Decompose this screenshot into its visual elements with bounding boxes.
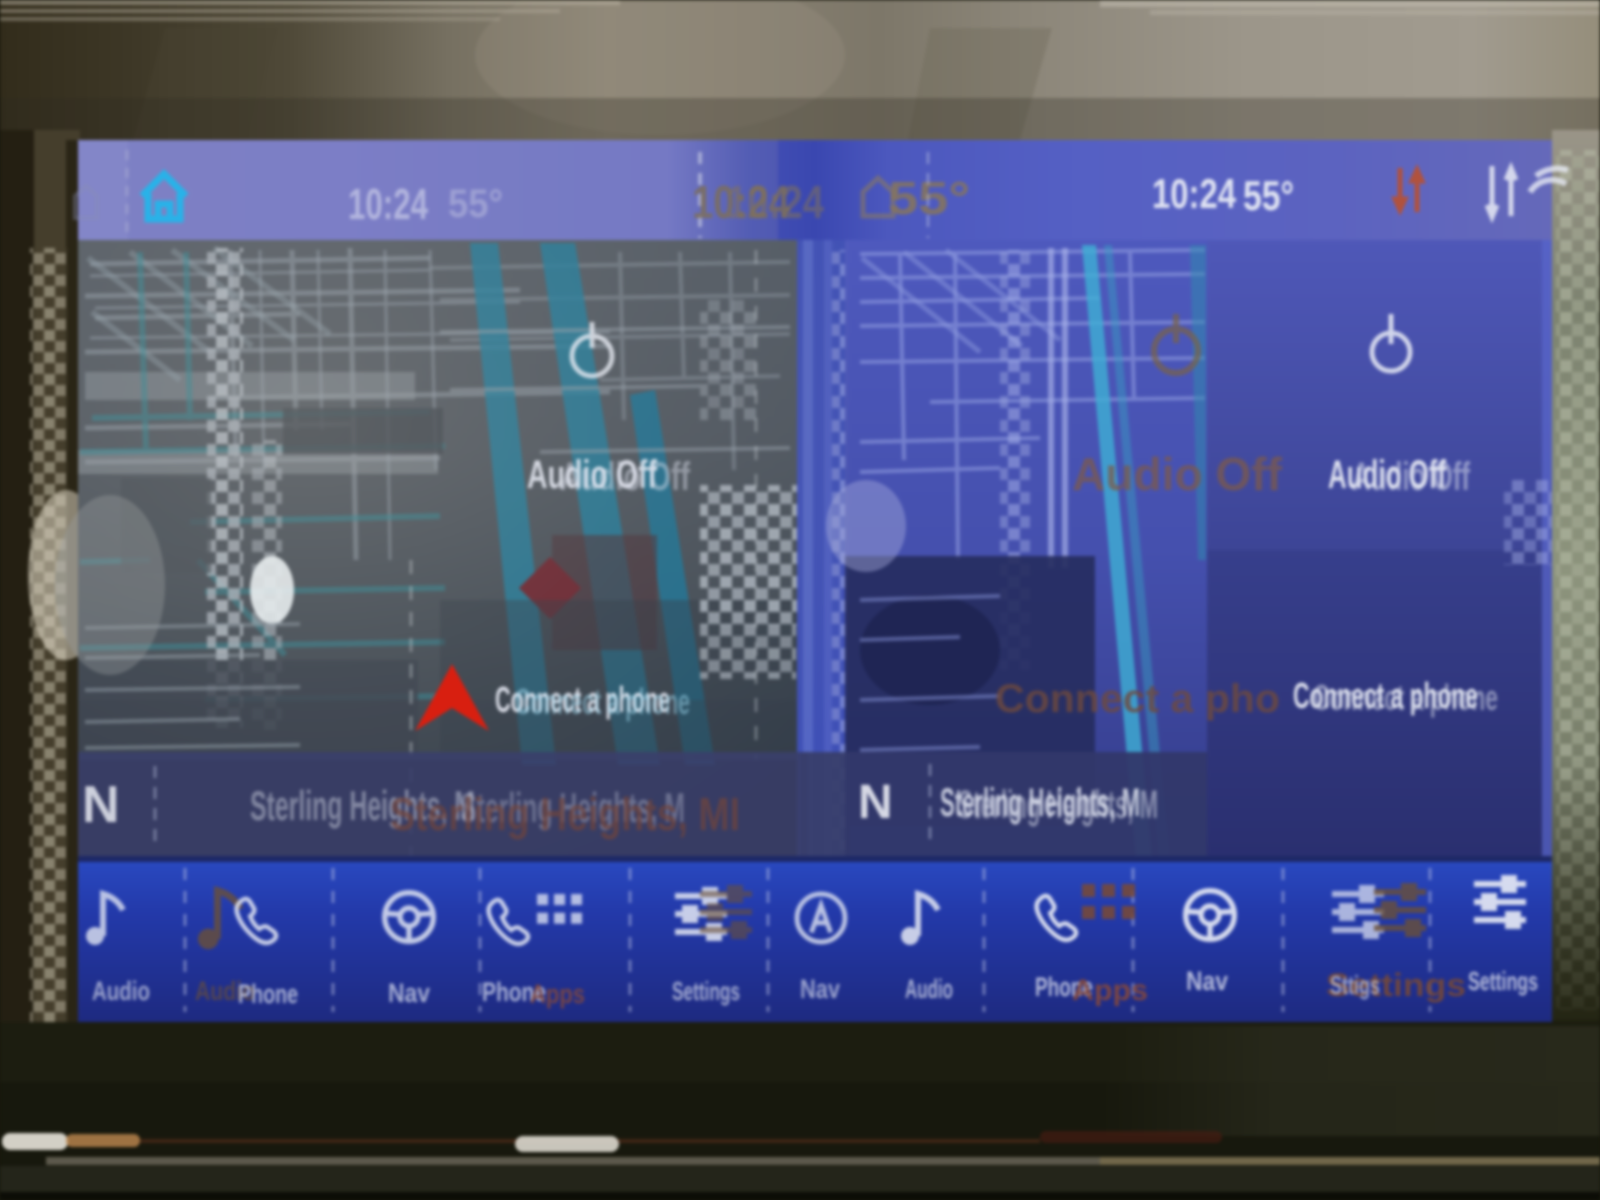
svg-text:Connect a phone: Connect a phone (515, 681, 690, 722)
svg-text:Sterling Heights, MI: Sterling Heights, MI (390, 788, 740, 840)
svg-text:Nav: Nav (800, 974, 840, 1004)
svg-text:Audio Off: Audio Off (1072, 448, 1283, 500)
svg-text:Nav: Nav (1186, 966, 1228, 996)
svg-text:Settings: Settings (1468, 966, 1538, 996)
svg-text:10:24: 10:24 (348, 180, 428, 229)
svg-text:Audio Off: Audio Off (560, 455, 690, 499)
svg-text:Connect a phone: Connect a phone (1313, 677, 1498, 718)
svg-text:Connect a pho: Connect a pho (995, 677, 1280, 721)
svg-text:55°: 55° (448, 182, 503, 226)
svg-text:Audio: Audio (92, 976, 150, 1006)
svg-text:55°: 55° (1243, 172, 1294, 219)
svg-text:Nav: Nav (388, 978, 430, 1008)
svg-text:Audio: Audio (905, 974, 953, 1004)
svg-text:Sttigs: Sttigs (1330, 970, 1380, 1000)
svg-text:Audio Off: Audio Off (1352, 455, 1470, 499)
svg-text:10:24: 10:24 (726, 176, 824, 228)
svg-text:Phone: Phone (238, 979, 298, 1009)
svg-text:10:24: 10:24 (1152, 170, 1237, 217)
svg-text:Sterling Heights, M: Sterling Heights, M (958, 783, 1158, 827)
svg-text:Apps: Apps (1072, 974, 1148, 1007)
svg-text:Settings: Settings (672, 976, 740, 1006)
svg-text:N: N (82, 776, 120, 834)
svg-text:N: N (858, 776, 893, 829)
svg-text:Apps: Apps (530, 979, 585, 1009)
